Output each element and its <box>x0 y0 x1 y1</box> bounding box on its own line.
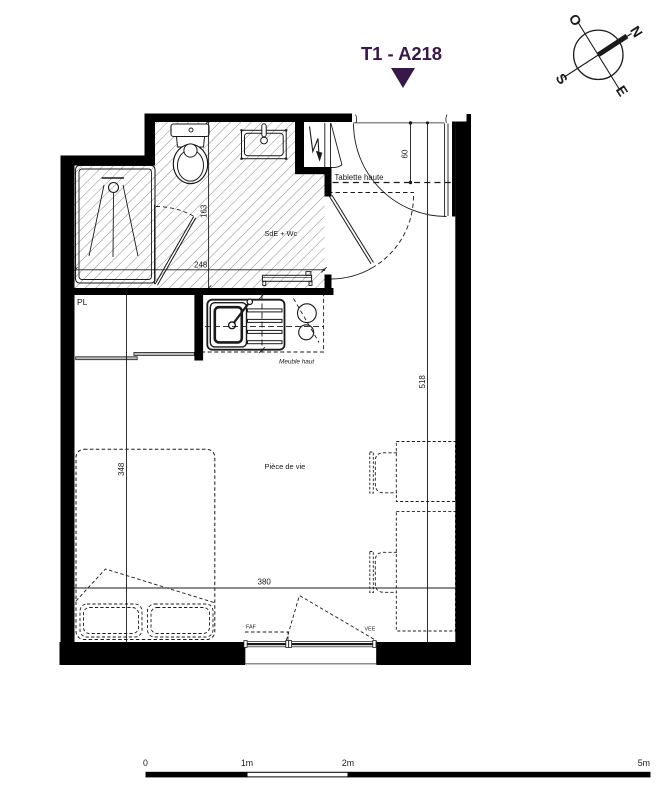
svg-text:VEE: VEE <box>365 627 376 633</box>
svg-text:518: 518 <box>418 375 427 389</box>
svg-text:Pièce de vie: Pièce de vie <box>265 462 306 471</box>
svg-text:Meuble haut: Meuble haut <box>279 358 314 365</box>
svg-text:5m: 5m <box>638 758 650 768</box>
svg-text:Tablette haute: Tablette haute <box>335 173 384 182</box>
svg-text:0: 0 <box>143 758 148 768</box>
svg-text:348: 348 <box>117 462 126 476</box>
svg-text:FAF: FAF <box>246 625 257 631</box>
svg-text:O: O <box>566 11 585 29</box>
svg-text:S: S <box>553 70 572 87</box>
svg-text:60: 60 <box>401 149 410 158</box>
svg-text:T1 - A218: T1 - A218 <box>361 43 442 64</box>
svg-text:380: 380 <box>258 578 272 587</box>
svg-text:1m: 1m <box>241 758 253 768</box>
svg-text:PL: PL <box>77 297 88 307</box>
svg-text:SdE + Wc: SdE + Wc <box>265 229 298 238</box>
svg-text:248: 248 <box>194 260 208 269</box>
svg-text:E: E <box>613 83 632 100</box>
svg-text:2m: 2m <box>342 758 354 768</box>
svg-text:N: N <box>627 23 646 40</box>
svg-text:163: 163 <box>200 204 209 218</box>
